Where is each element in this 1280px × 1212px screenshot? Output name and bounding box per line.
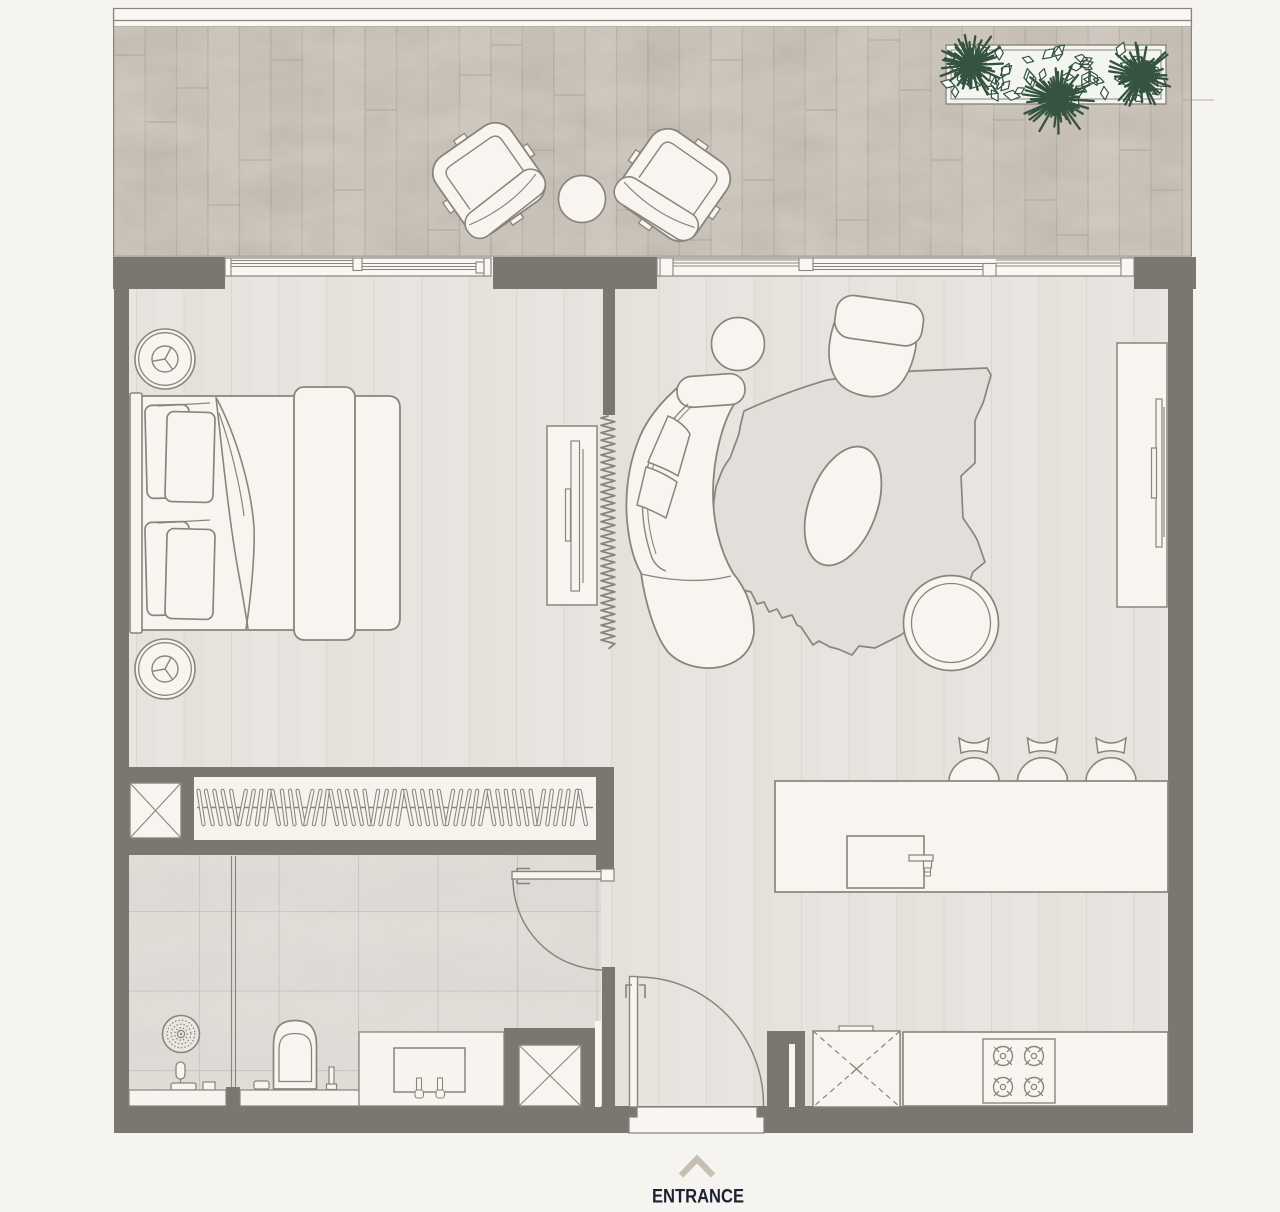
svg-text:ENTRANCE: ENTRANCE	[652, 1185, 744, 1207]
